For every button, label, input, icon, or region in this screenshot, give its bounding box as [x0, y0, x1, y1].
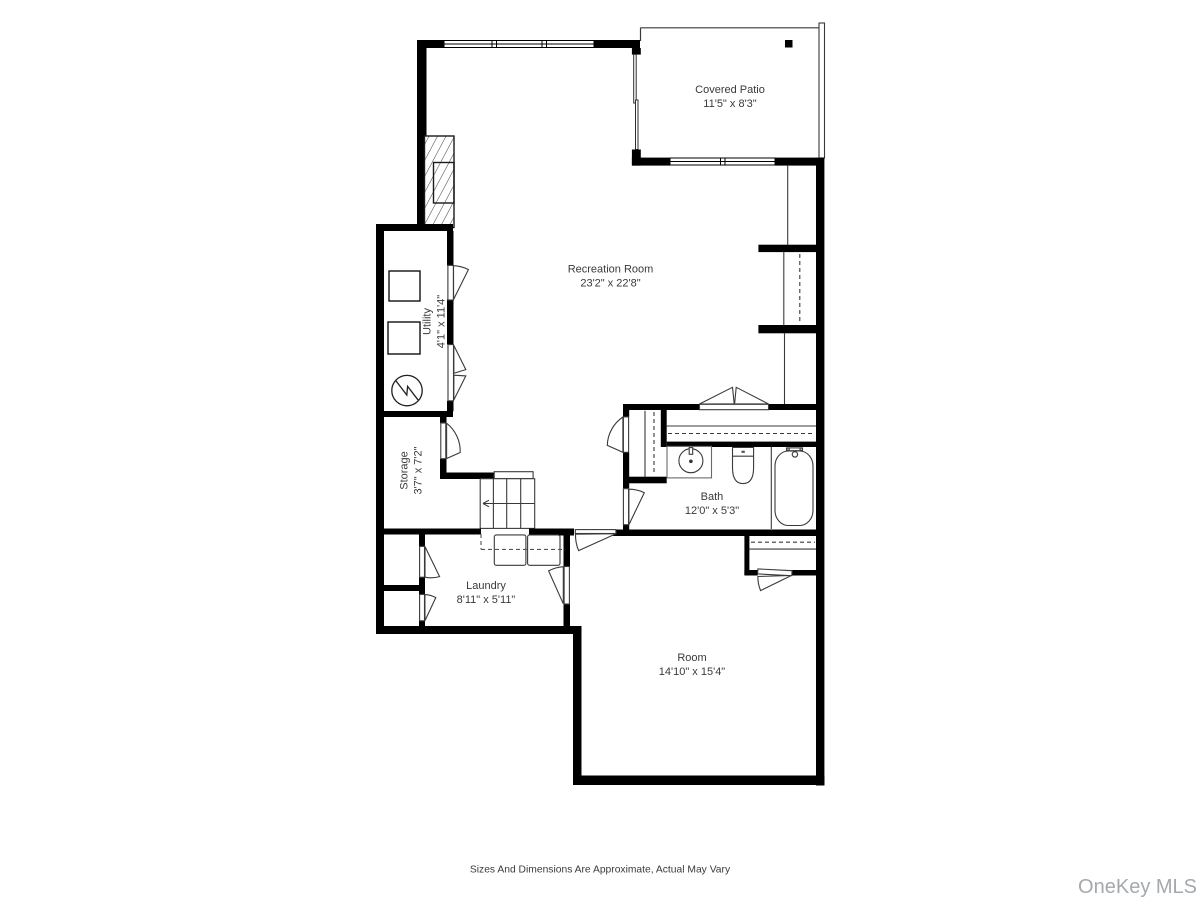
svg-text:4'1" x 11'4": 4'1" x 11'4": [436, 295, 448, 348]
svg-text:8'11" x 5'11": 8'11" x 5'11": [457, 594, 516, 606]
svg-text:Storage: Storage: [399, 451, 411, 490]
svg-text:14'10" x 15'4": 14'10" x 15'4": [659, 666, 726, 678]
svg-text:Laundry: Laundry: [466, 580, 506, 592]
svg-text:11'5" x 8'3": 11'5" x 8'3": [703, 98, 756, 110]
svg-text:Covered Patio: Covered Patio: [695, 84, 765, 96]
svg-text:Bath: Bath: [701, 491, 724, 503]
svg-text:23'2" x 22'8": 23'2" x 22'8": [580, 278, 640, 290]
svg-text:12'0" x 5'3": 12'0" x 5'3": [685, 505, 739, 517]
svg-text:Room: Room: [677, 652, 706, 664]
svg-text:Utility: Utility: [422, 308, 434, 335]
svg-text:Sizes And Dimensions Are Appro: Sizes And Dimensions Are Approximate, Ac…: [470, 865, 731, 876]
svg-text:OneKey MLS: OneKey MLS: [1078, 876, 1197, 898]
svg-text:3'7" x 7'2": 3'7" x 7'2": [413, 446, 425, 494]
svg-text:Recreation Room: Recreation Room: [568, 264, 654, 276]
